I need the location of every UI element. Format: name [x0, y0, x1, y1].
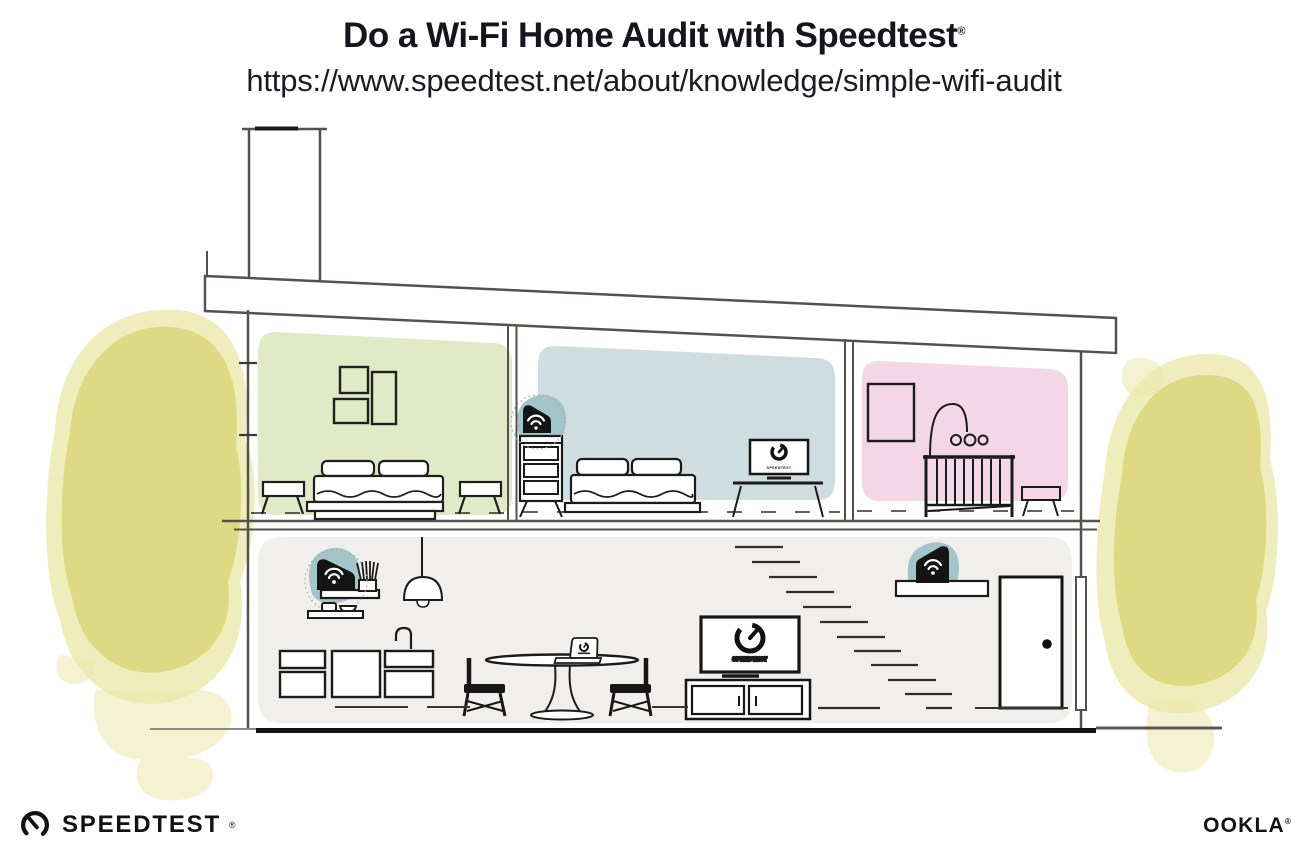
- mattress: [314, 476, 443, 502]
- dresser: [520, 436, 562, 517]
- tree-right-core: [1114, 375, 1266, 686]
- bed-platform: [565, 503, 700, 512]
- tv: SPEEDTEST: [701, 617, 799, 676]
- right-wall-trim: [1076, 577, 1086, 710]
- pillow: [632, 459, 681, 475]
- bed-platform: [307, 502, 443, 511]
- laptop-base: [555, 658, 602, 663]
- table-base: [531, 711, 593, 720]
- monitor-label: SPEEDTEST: [767, 466, 792, 470]
- speedtest-logo: SPEEDTEST®: [16, 806, 236, 844]
- pillow: [577, 459, 628, 475]
- tree-left-core: [62, 327, 242, 673]
- bed-blue: [565, 459, 700, 512]
- ookla-wordmark: OOKLA: [1203, 814, 1285, 837]
- speedtest-registered-mark: ®: [229, 820, 236, 830]
- laptop-label-bar: [578, 653, 590, 655]
- tv-label: SPEEDTEST: [732, 657, 767, 663]
- bed-base: [315, 511, 435, 519]
- pillow: [322, 461, 374, 476]
- door-knob: [1042, 639, 1052, 649]
- front-door: [1000, 577, 1062, 708]
- bed-green: [307, 461, 443, 519]
- laptop-screen: [570, 638, 598, 658]
- tree-left: [46, 310, 255, 801]
- ookla-logo: OOKLA®: [1203, 814, 1292, 838]
- mattress: [571, 475, 695, 503]
- speedtest-gauge-icon: [16, 806, 54, 844]
- ookla-registered-mark: ®: [1285, 817, 1292, 826]
- tree-right: [1096, 354, 1277, 773]
- house-illustration: SPEEDTEST: [0, 0, 1308, 861]
- speedtest-wordmark: SPEEDTEST: [62, 811, 221, 839]
- wall-shelf: [896, 581, 988, 596]
- pillow: [379, 461, 428, 476]
- wifi-home-audit-infographic: { "header": { "title": "Do a Wi-Fi Home …: [0, 0, 1308, 861]
- media-console: [686, 680, 810, 719]
